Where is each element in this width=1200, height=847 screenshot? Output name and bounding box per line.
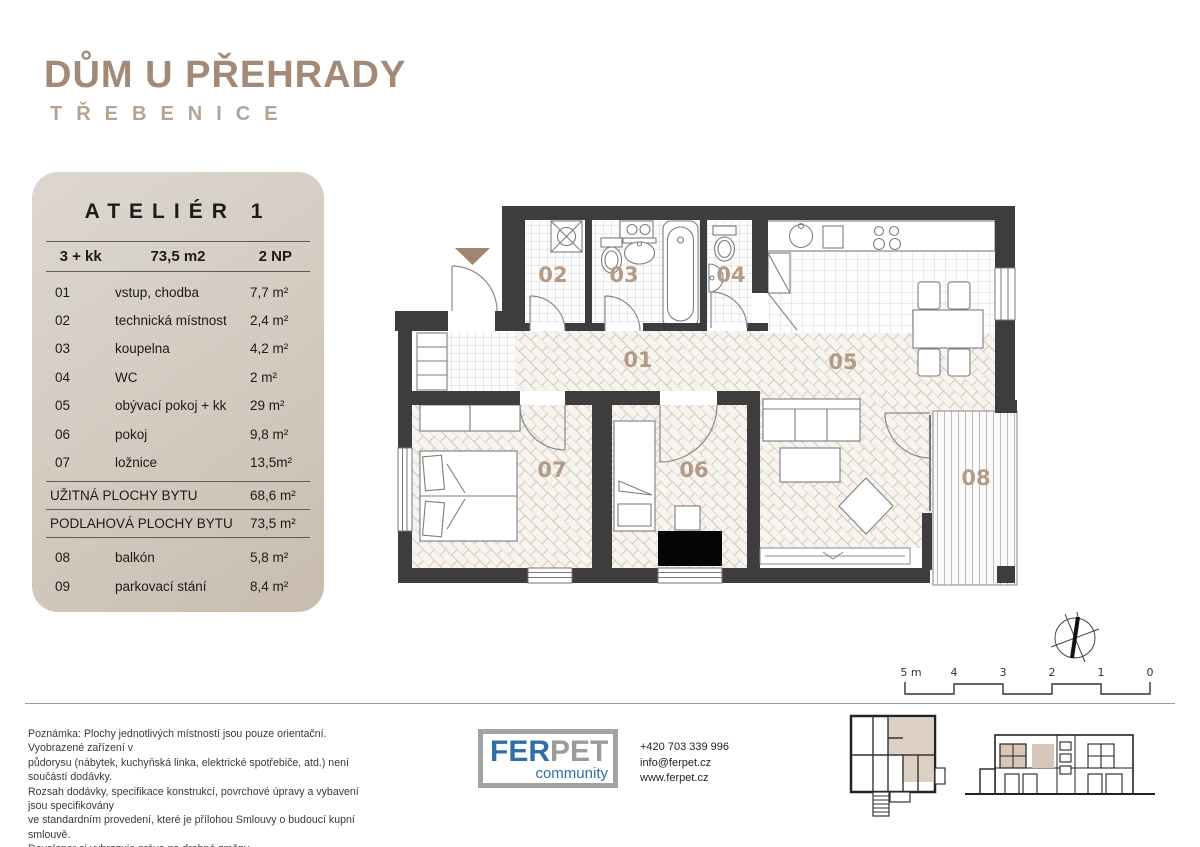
room-name: koupelna (115, 341, 250, 356)
contact-email: info@ferpet.cz (640, 756, 729, 772)
label-room03: 03 (609, 263, 638, 287)
label-room05: 05 (828, 350, 857, 374)
building-floor-locator (843, 710, 953, 822)
scale-compass-drawing: 5 m 4 3 2 1 0 (893, 600, 1173, 700)
double-bed (420, 451, 517, 541)
room-area: 13,5m² (250, 455, 308, 470)
facade (980, 735, 1133, 794)
room-list-row: 01 vstup, chodba 7,7 m² (32, 278, 324, 306)
toilet-wc (713, 226, 736, 261)
room-area: 29 m² (250, 398, 308, 413)
summary-row-floor: PODLAHOVÁ PLOCHY BYTU 73,5 m² (32, 510, 324, 537)
summary-label: UŽITNÁ PLOCHY BYTU (50, 488, 250, 503)
room-list-row: 09 parkovací stání 8,4 m² (32, 572, 324, 600)
floor-plan-drawing: 01 02 03 04 05 06 07 08 (395, 193, 1040, 605)
label-room08: 08 (961, 466, 990, 490)
single-bed (614, 421, 655, 531)
unit-info-panel: ATELIÉR 1 3 + kk 73,5 m2 2 NP 01 vstup, … (32, 172, 324, 612)
room-list-row: 08 balkón 5,8 m² (32, 544, 324, 572)
entry-porch (890, 792, 910, 802)
room-name: WC (115, 370, 250, 385)
floor-locator-drawing (843, 710, 953, 822)
contact-phone: +420 703 339 996 (640, 740, 729, 756)
balcony-stub (935, 768, 945, 784)
room-list-row: 07 ložnice 13,5m² (32, 448, 324, 476)
entry-door (452, 266, 497, 311)
sink-bathroom (623, 238, 656, 264)
scale-label: 5 m (900, 666, 921, 679)
disclaimer-note: Poznámka: Plochy jednotlivých místností … (28, 727, 366, 847)
ferpet-logo-text: FERPET (490, 735, 608, 769)
unit-floor: 2 NP (227, 248, 324, 265)
window-room06-south (658, 568, 722, 583)
room-name: ložnice (115, 455, 250, 470)
scale-bar: 5 m 4 3 2 1 0 (900, 666, 1153, 694)
window-living-south (760, 548, 910, 564)
room-number: 03 (55, 341, 115, 356)
room-name: balkón (115, 550, 250, 565)
unit-name: ATELIÉR 1 (32, 172, 324, 224)
summary-label: PODLAHOVÁ PLOCHY BYTU (50, 516, 250, 531)
label-room01: 01 (623, 348, 652, 372)
room-list-row: 06 pokoj 9,8 m² (32, 420, 324, 448)
annex (980, 769, 995, 794)
project-subtitle: TŘEBENICE (50, 103, 406, 126)
floor-plan: 01 02 03 04 05 06 07 08 (395, 193, 1040, 605)
bathtub (663, 221, 698, 327)
flyer-page: DŮM U PŘEHRADY TŘEBENICE ATELIÉR 1 3 + k… (0, 0, 1200, 847)
vestibule-closet (417, 333, 447, 390)
building-elevation (960, 722, 1160, 804)
washing-machine (551, 221, 582, 252)
room-name: vstup, chodba (115, 285, 250, 300)
unit-highlight (888, 718, 933, 782)
room-list-row: 04 WC 2 m² (32, 363, 324, 391)
room-number: 02 (55, 313, 115, 328)
contact-web: www.ferpet.cz (640, 771, 729, 787)
scale-label: 0 (1147, 666, 1154, 679)
room-area: 7,7 m² (250, 285, 308, 300)
contact-block: +420 703 339 996 info@ferpet.cz www.ferp… (640, 740, 729, 787)
room-list-row: 05 obývací pokoj + kk 29 m² (32, 392, 324, 420)
label-room02: 02 (538, 263, 567, 287)
room-name: parkovací stání (115, 579, 250, 594)
room-number: 05 (55, 398, 115, 413)
scale-label: 2 (1049, 666, 1056, 679)
unit-layout: 3 + kk (32, 248, 129, 265)
summary-value: 73,5 m² (250, 516, 308, 531)
room-area: 2 m² (250, 370, 308, 385)
room-name: technická místnost (115, 313, 250, 328)
project-title: DŮM U PŘEHRADY (44, 56, 406, 96)
scale-and-compass: 5 m 4 3 2 1 0 (893, 600, 1173, 700)
room-number: 04 (55, 370, 115, 385)
bathroom-counter (620, 221, 653, 238)
room-area: 5,8 m² (250, 550, 308, 565)
ferpet-logo: FERPET community (478, 729, 618, 788)
label-room06: 06 (679, 458, 708, 482)
scale-labels: 5 m 4 3 2 1 0 (900, 666, 1153, 679)
compass-icon (1051, 612, 1099, 662)
label-room07: 07 (537, 458, 566, 482)
entrance-arrow-icon (455, 248, 490, 265)
unit-total-area: 73,5 m2 (129, 248, 226, 265)
window-living-east (995, 268, 1015, 320)
logo-part-fer: FER (490, 735, 550, 768)
scale-label: 3 (1000, 666, 1007, 679)
bedroom-wardrobe (420, 405, 520, 431)
window-bedroom-south (528, 568, 572, 583)
scale-label: 4 (951, 666, 958, 679)
logo-part-pet: PET (550, 735, 608, 768)
scale-label: 1 (1098, 666, 1105, 679)
logo-tagline: community (535, 765, 608, 782)
room-area: 2,4 m² (250, 313, 308, 328)
label-room04: 04 (716, 263, 745, 287)
room-area: 4,2 m² (250, 341, 308, 356)
scale-bar-line (905, 682, 1150, 694)
desk-chair (675, 506, 700, 530)
unit-spec-row: 3 + kk 73,5 m2 2 NP (32, 242, 324, 271)
vestibule-floor (447, 331, 515, 391)
room-number: 09 (55, 579, 115, 594)
room-list-row: 03 koupelna 4,2 m² (32, 335, 324, 363)
room-name: pokoj (115, 427, 250, 442)
project-header: DŮM U PŘEHRADY TŘEBENICE (44, 56, 406, 126)
extras-list: 08 balkón 5,8 m² 09 parkovací stání 8,4 … (32, 538, 324, 605)
room-number: 08 (55, 550, 115, 565)
elevation-drawing (960, 722, 1160, 804)
summary-value: 68,6 m² (250, 488, 308, 503)
summary-row-usable: UŽITNÁ PLOCHY BYTU 68,6 m² (32, 482, 324, 509)
kitchen-counter (763, 221, 995, 251)
room-list: 01 vstup, chodba 7,7 m² 02 technická mís… (32, 272, 324, 481)
sofa (763, 399, 860, 441)
window-bedroom-west (398, 448, 412, 531)
balcony-decking (933, 411, 1017, 585)
staircase (873, 792, 889, 816)
room-area: 8,4 m² (250, 579, 308, 594)
room-number: 01 (55, 285, 115, 300)
room-number: 06 (55, 427, 115, 442)
room-number: 07 (55, 455, 115, 470)
room-area: 9,8 m² (250, 427, 308, 442)
footer-divider (25, 703, 1175, 704)
room-list-row: 02 technická místnost 2,4 m² (32, 306, 324, 334)
room-name: obývací pokoj + kk (115, 398, 250, 413)
wardrobe-block (658, 531, 722, 566)
coffee-table (780, 448, 840, 482)
kitchen-tall-cabinet (768, 253, 790, 293)
